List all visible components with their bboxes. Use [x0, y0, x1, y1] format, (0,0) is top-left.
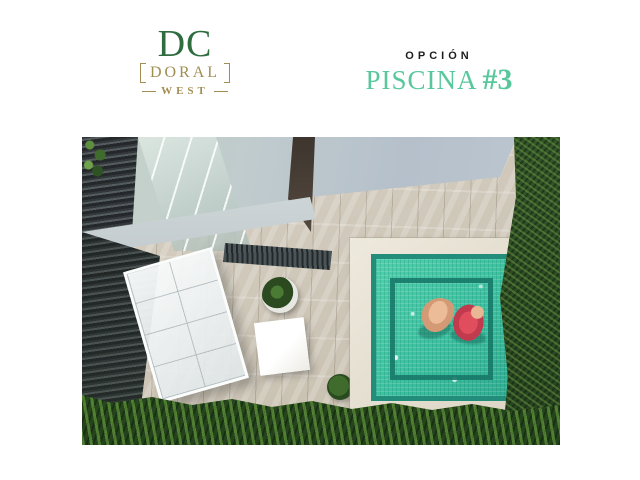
left-bracket-ornament	[140, 63, 146, 83]
option-title: PISCINA	[365, 65, 477, 95]
option-title-row: PISCINA#3	[350, 63, 528, 97]
brand-name-row: DORAL	[131, 63, 239, 83]
left-line-ornament	[142, 91, 156, 92]
round-potted-plant	[262, 277, 298, 313]
brand-logo: DC DORAL WEST	[131, 26, 239, 97]
option-kicker: OPCIÓN	[350, 50, 528, 62]
brand-suffix-row: WEST	[131, 85, 239, 97]
foliage-top-left	[82, 137, 108, 177]
option-number: #3	[483, 63, 513, 96]
brand-initials: DC	[131, 26, 239, 62]
white-square-table	[254, 317, 310, 376]
pool-water	[371, 254, 512, 401]
brand-name: DORAL	[150, 64, 220, 82]
pool-render-photo	[82, 137, 560, 445]
right-bracket-ornament	[224, 63, 230, 83]
option-block: OPCIÓN PISCINA#3	[350, 50, 528, 97]
brand-suffix: WEST	[161, 85, 209, 97]
right-line-ornament	[214, 91, 228, 92]
flyer-page: DC DORAL WEST OPCIÓN PISCINA#3	[0, 0, 640, 480]
